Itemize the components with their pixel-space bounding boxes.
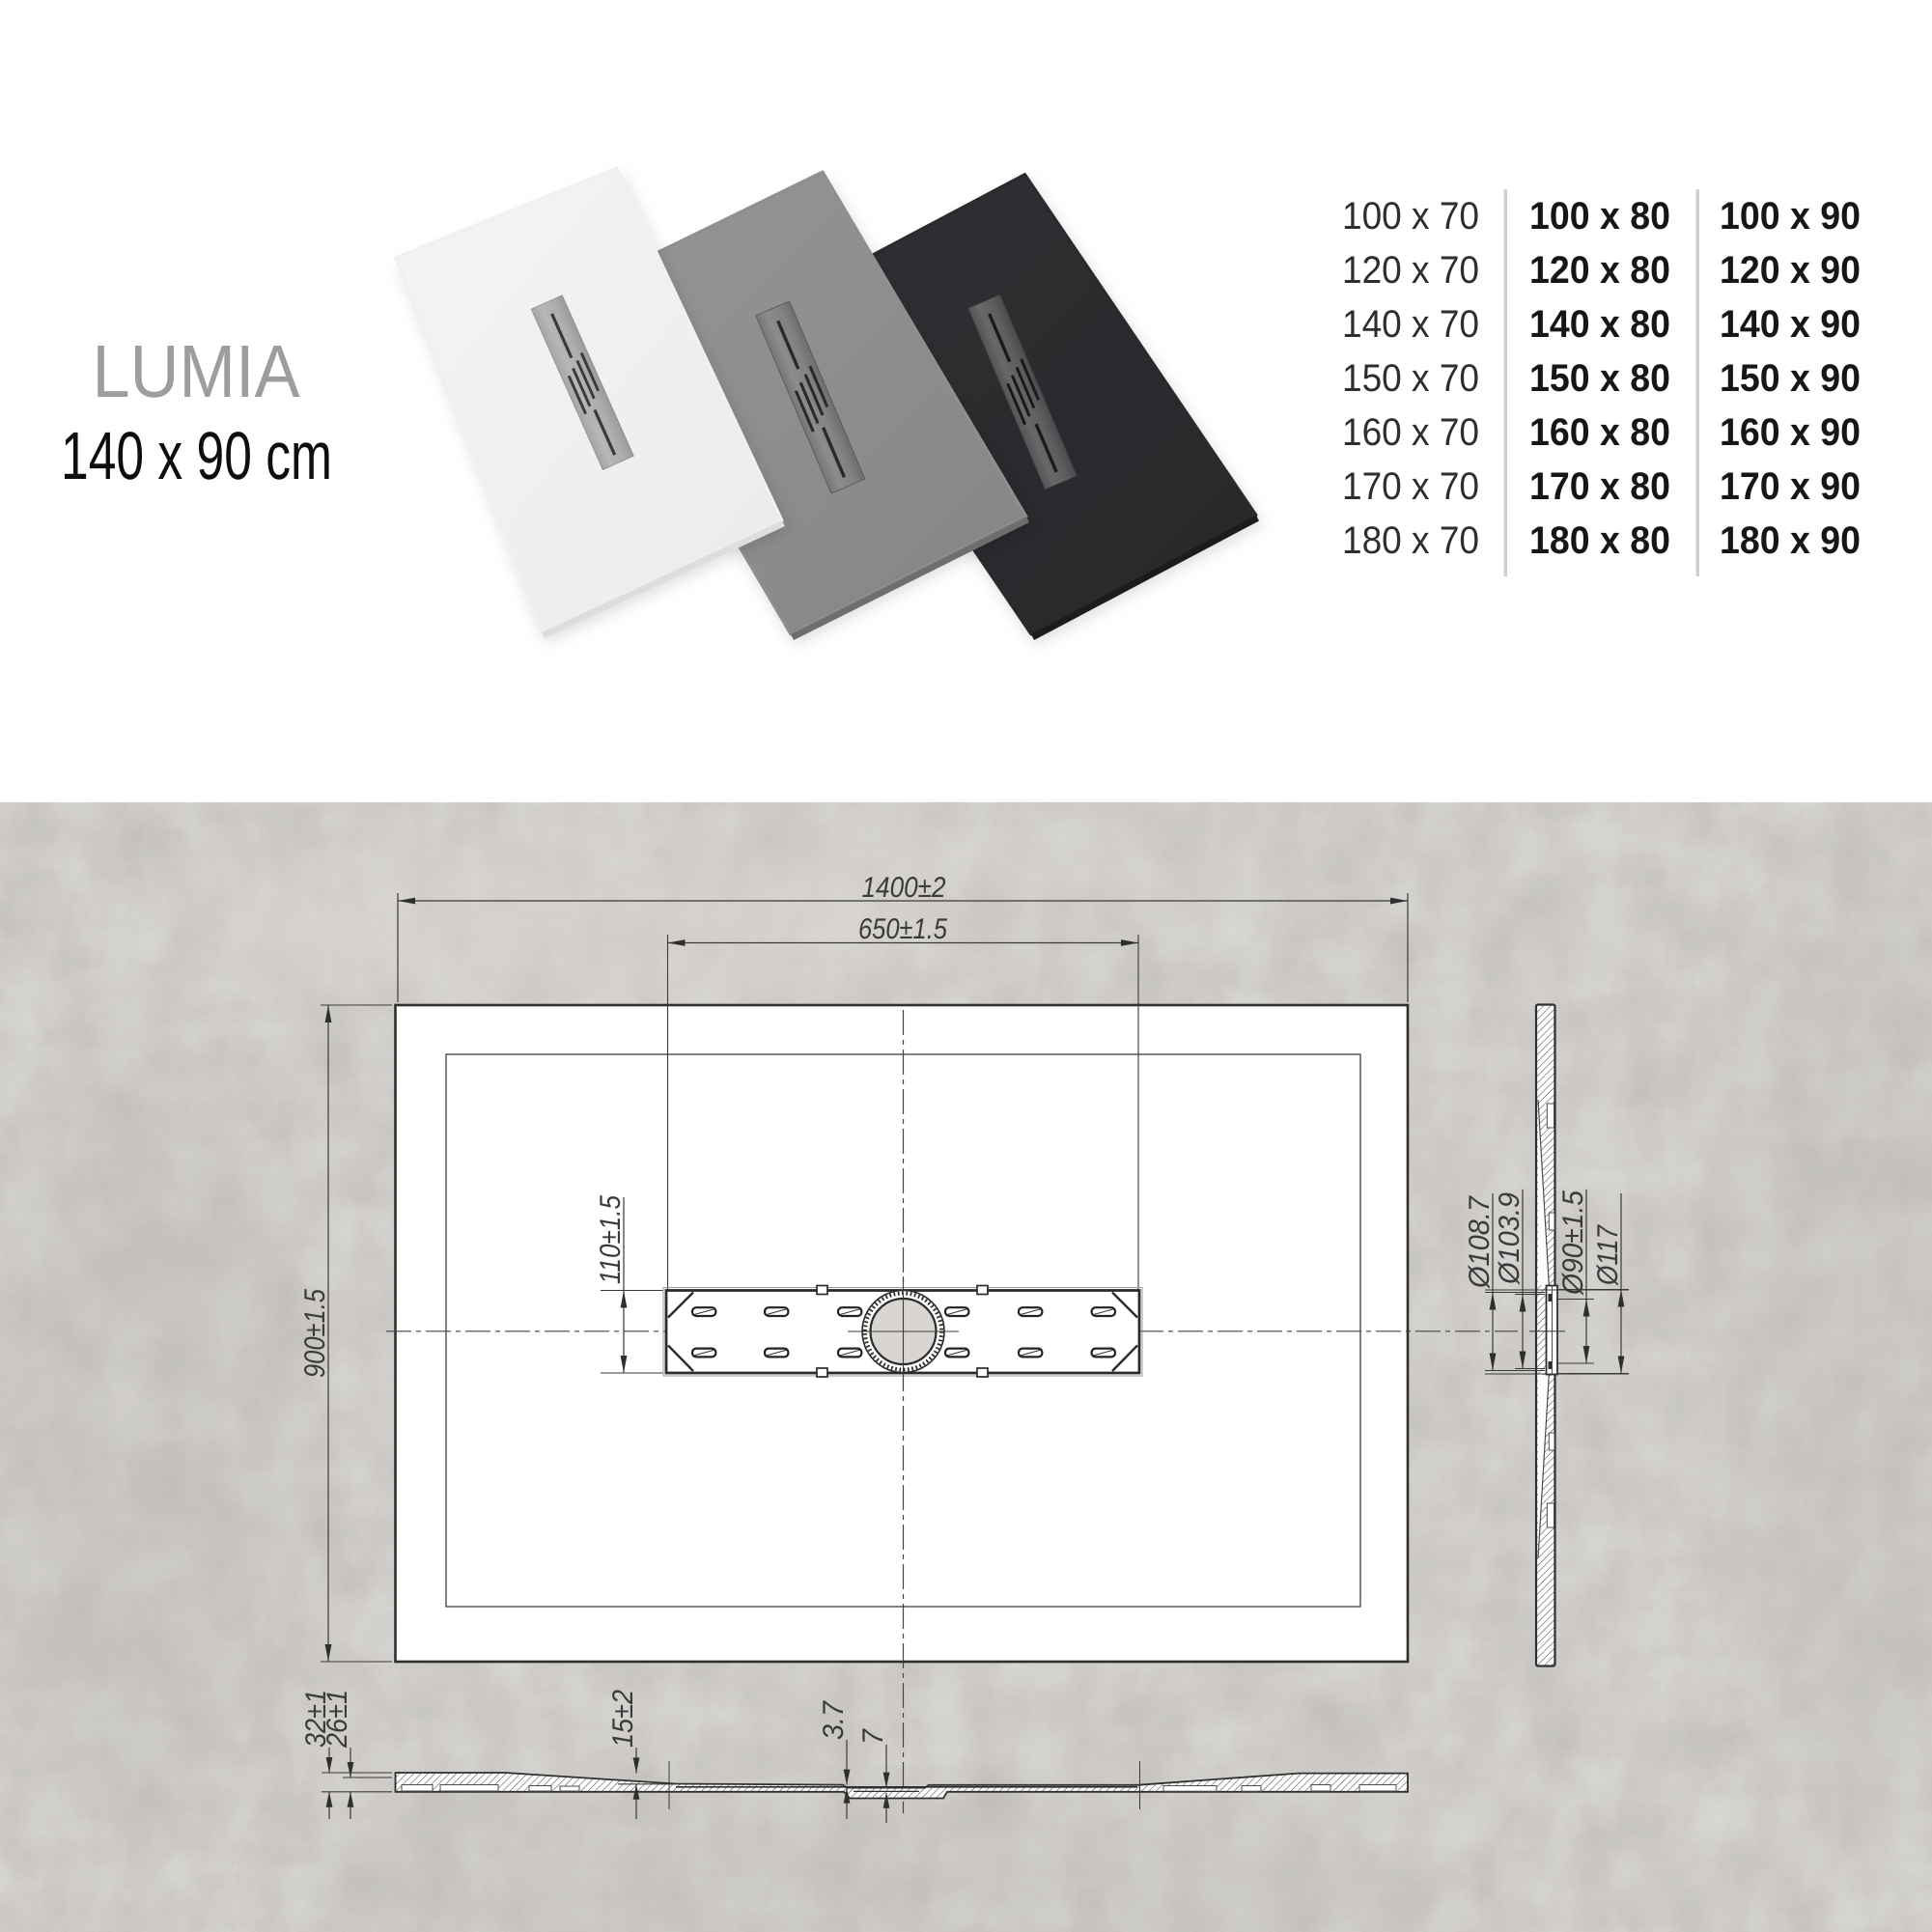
svg-text:100 x 70: 100 x 70	[1342, 195, 1479, 238]
svg-text:180 x 70: 180 x 70	[1342, 519, 1479, 562]
svg-text:1400±2: 1400±2	[862, 872, 946, 904]
svg-text:26±1: 26±1	[322, 1690, 353, 1749]
svg-text:Ø90±1.5: Ø90±1.5	[1557, 1190, 1589, 1296]
svg-text:160 x 90: 160 x 90	[1720, 411, 1861, 454]
svg-text:150 x 90: 150 x 90	[1720, 357, 1861, 400]
svg-text:120 x 70: 120 x 70	[1342, 249, 1479, 292]
svg-text:150 x 80: 150 x 80	[1529, 357, 1670, 400]
svg-text:120 x 80: 120 x 80	[1529, 249, 1670, 292]
svg-text:3.7: 3.7	[818, 1700, 850, 1740]
svg-text:100 x 80: 100 x 80	[1529, 195, 1670, 238]
svg-text:120 x 90: 120 x 90	[1720, 249, 1861, 292]
svg-text:Ø117: Ø117	[1592, 1224, 1624, 1286]
svg-text:160 x 80: 160 x 80	[1529, 411, 1670, 454]
svg-text:180 x 90: 180 x 90	[1720, 519, 1861, 562]
svg-text:650±1.5: 650±1.5	[858, 913, 947, 945]
svg-text:15±2: 15±2	[607, 1690, 639, 1748]
svg-text:170 x 80: 170 x 80	[1529, 465, 1670, 508]
svg-text:170 x 90: 170 x 90	[1720, 465, 1861, 508]
svg-text:7: 7	[857, 1728, 889, 1745]
svg-text:Ø108.7: Ø108.7	[1464, 1195, 1496, 1289]
svg-text:150 x 70: 150 x 70	[1342, 357, 1479, 400]
svg-text:140 x 90: 140 x 90	[1720, 303, 1861, 346]
svg-text:140 x 90 cm: 140 x 90 cm	[61, 418, 332, 493]
svg-text:160 x 70: 160 x 70	[1342, 411, 1479, 454]
svg-text:140 x 70: 140 x 70	[1342, 303, 1479, 346]
svg-text:180 x 80: 180 x 80	[1529, 519, 1670, 562]
svg-text:110±1.5: 110±1.5	[595, 1195, 627, 1284]
svg-text:LUMIA: LUMIA	[93, 330, 301, 413]
svg-text:900±1.5: 900±1.5	[299, 1289, 331, 1378]
svg-text:170 x 70: 170 x 70	[1342, 465, 1479, 508]
svg-text:Ø103.9: Ø103.9	[1494, 1192, 1526, 1285]
svg-text:140 x 80: 140 x 80	[1529, 303, 1670, 346]
svg-text:100 x 90: 100 x 90	[1720, 195, 1861, 238]
